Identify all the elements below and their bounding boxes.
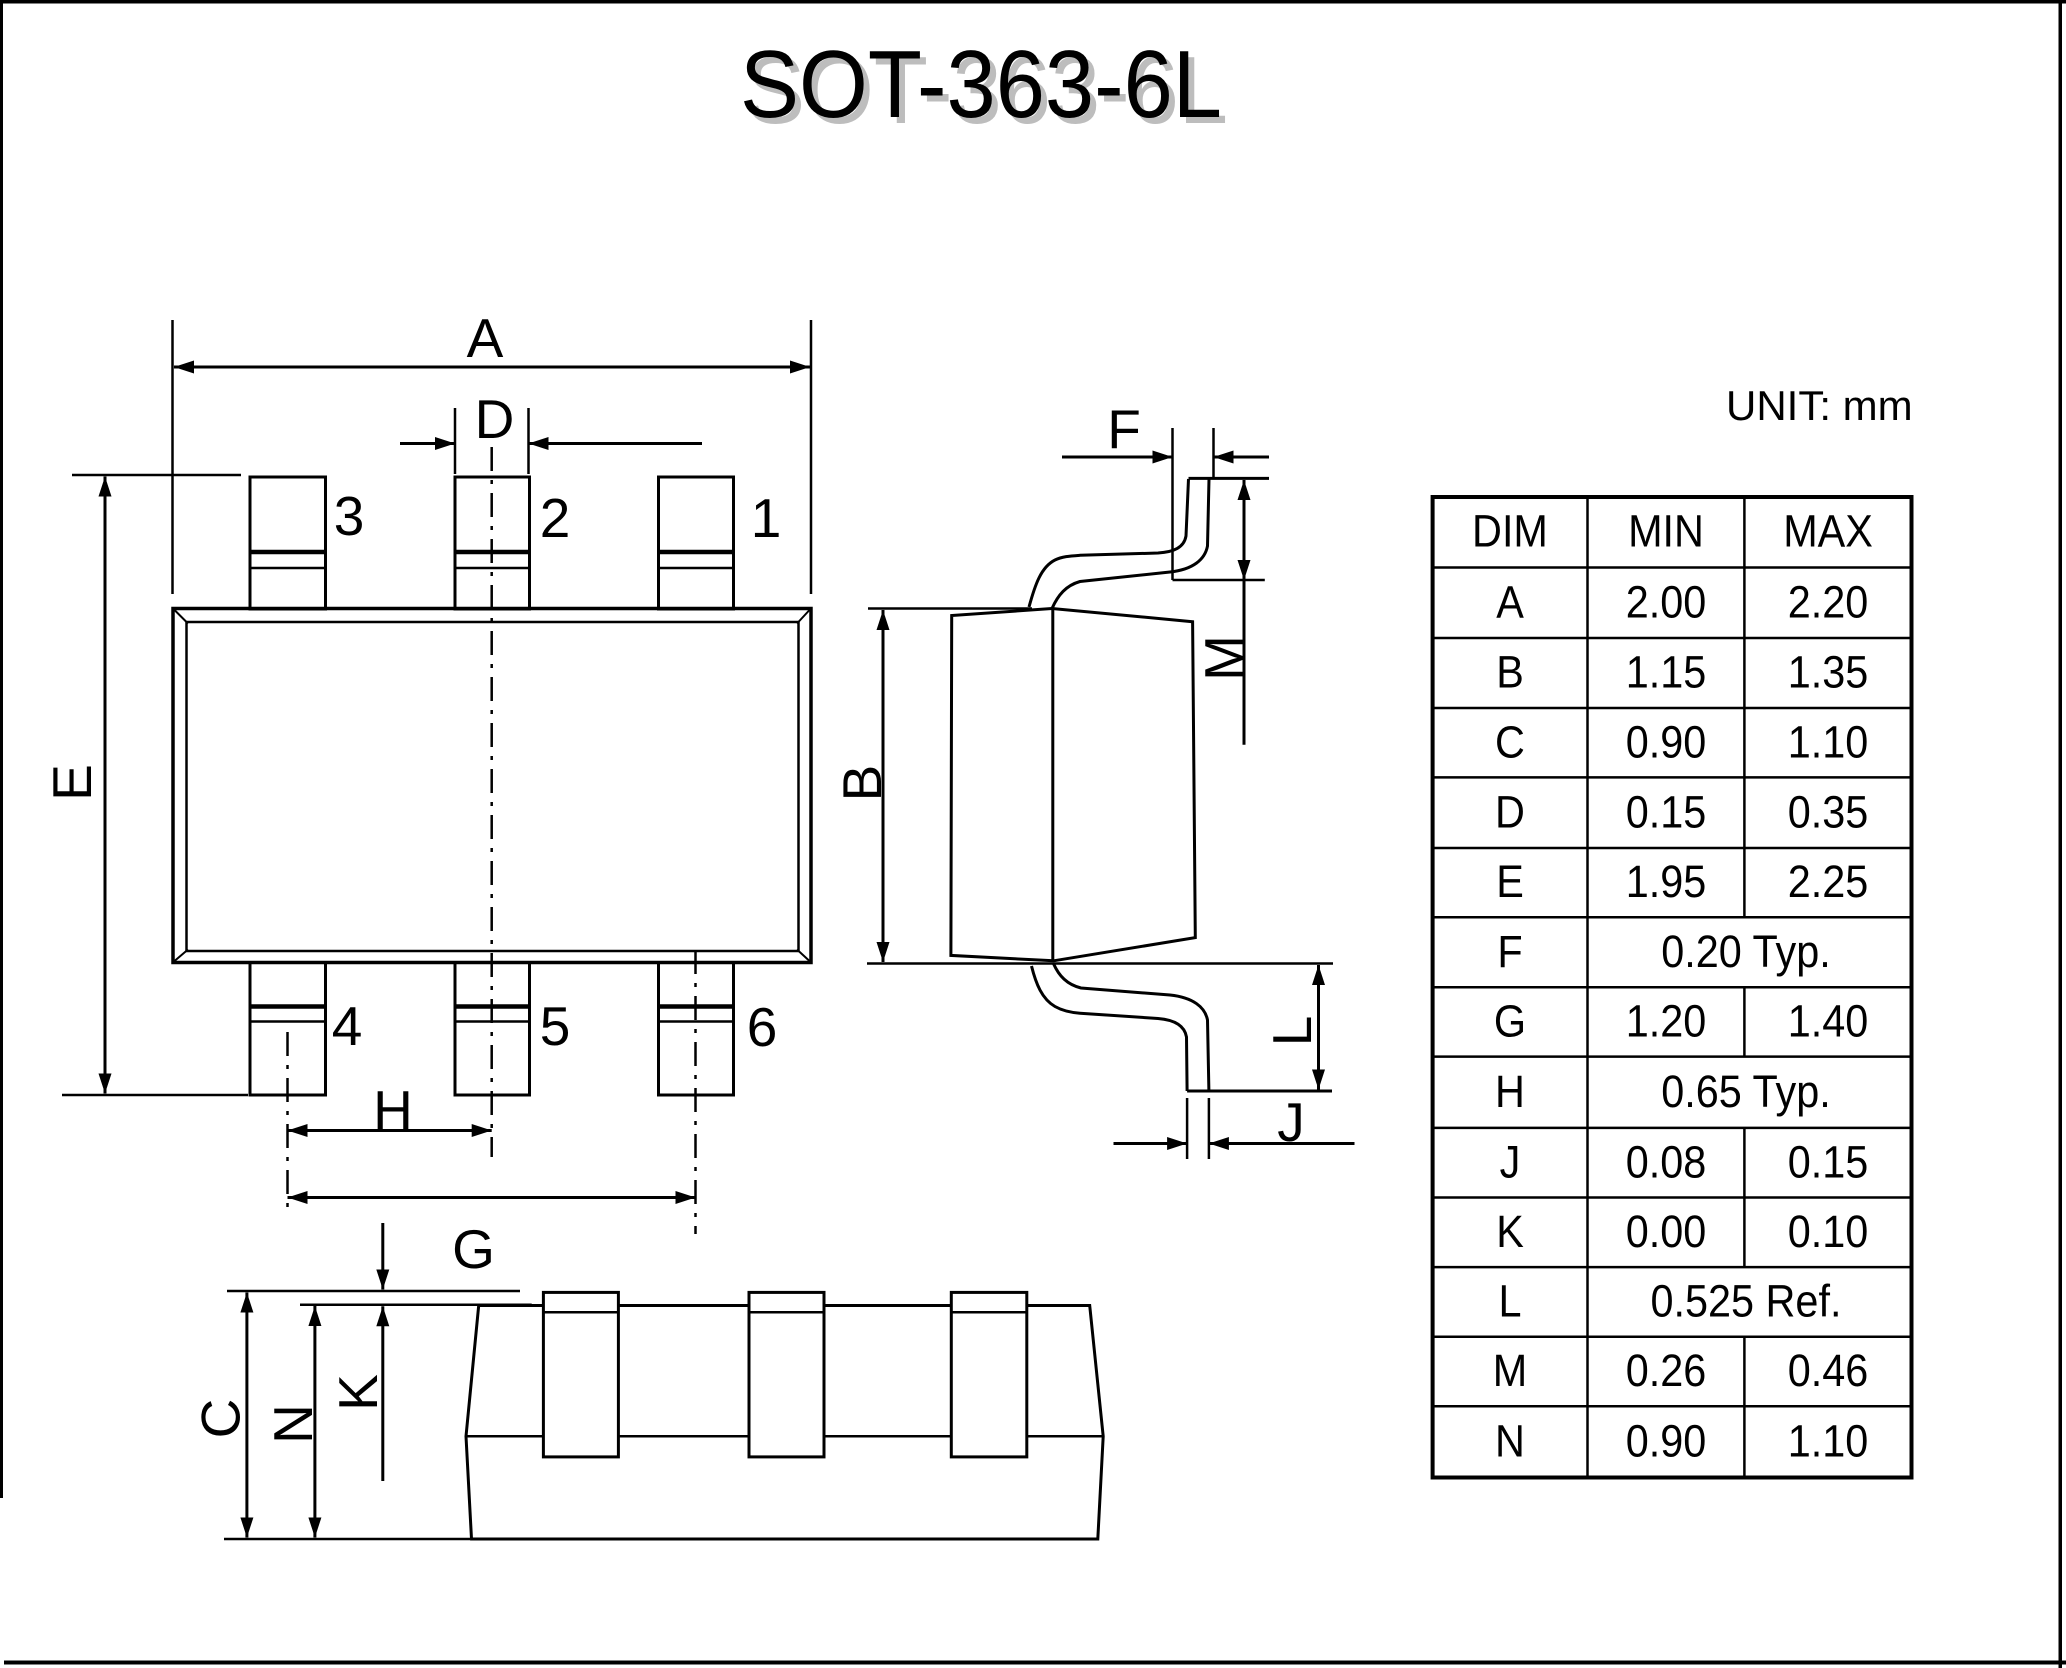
svg-text:0.46: 0.46	[1788, 1347, 1869, 1397]
svg-text:H: H	[1495, 1067, 1525, 1117]
svg-text:2.20: 2.20	[1788, 578, 1869, 628]
svg-text:M: M	[1193, 635, 1255, 681]
svg-text:0.08: 0.08	[1626, 1138, 1707, 1188]
svg-text:MAX: MAX	[1783, 507, 1873, 557]
svg-text:C: C	[1495, 718, 1525, 768]
svg-text:L: L	[1261, 1016, 1323, 1047]
svg-text:SOT-363-6L: SOT-363-6L	[740, 31, 1222, 138]
svg-text:0.15: 0.15	[1788, 1138, 1869, 1188]
svg-text:0.10: 0.10	[1788, 1207, 1869, 1257]
svg-text:0.35: 0.35	[1788, 788, 1869, 838]
svg-text:D: D	[1495, 788, 1525, 838]
svg-text:E: E	[1496, 858, 1524, 908]
svg-text:2.25: 2.25	[1788, 858, 1869, 908]
svg-text:6: 6	[747, 996, 778, 1058]
svg-text:B: B	[1496, 648, 1524, 698]
svg-text:5: 5	[540, 995, 571, 1057]
svg-text:1.20: 1.20	[1626, 997, 1707, 1047]
svg-text:0.00: 0.00	[1626, 1207, 1707, 1257]
svg-text:G: G	[1494, 997, 1526, 1047]
svg-text:N: N	[1495, 1417, 1525, 1467]
svg-text:A: A	[1496, 578, 1524, 628]
svg-text:0.26: 0.26	[1626, 1347, 1707, 1397]
svg-text:4: 4	[332, 995, 363, 1057]
svg-text:A: A	[467, 307, 504, 369]
svg-text:F: F	[1497, 927, 1522, 977]
svg-text:MIN: MIN	[1628, 507, 1704, 557]
svg-text:0.90: 0.90	[1626, 718, 1707, 768]
svg-text:J: J	[1277, 1091, 1305, 1153]
svg-text:G: G	[452, 1218, 495, 1280]
svg-text:DIM: DIM	[1472, 507, 1548, 557]
svg-text:K: K	[327, 1374, 389, 1411]
svg-text:2: 2	[540, 487, 571, 549]
svg-text:1.40: 1.40	[1788, 997, 1869, 1047]
svg-text:1.35: 1.35	[1788, 648, 1869, 698]
svg-text:1.10: 1.10	[1788, 718, 1869, 768]
svg-text:0.20 Typ.: 0.20 Typ.	[1661, 927, 1830, 977]
svg-text:3: 3	[334, 485, 365, 547]
svg-text:N: N	[262, 1404, 324, 1444]
svg-text:F: F	[1107, 399, 1141, 461]
svg-text:0.15: 0.15	[1626, 788, 1707, 838]
svg-text:0.90: 0.90	[1626, 1417, 1707, 1467]
svg-text:2.00: 2.00	[1626, 578, 1707, 628]
svg-text:1.95: 1.95	[1626, 858, 1707, 908]
svg-text:1: 1	[751, 487, 782, 549]
svg-text:J: J	[1500, 1138, 1521, 1188]
svg-text:0.525 Ref.: 0.525 Ref.	[1650, 1277, 1841, 1327]
svg-text:C: C	[190, 1399, 252, 1439]
svg-text:M: M	[1493, 1347, 1527, 1397]
svg-text:L: L	[1498, 1277, 1521, 1327]
svg-text:UNIT: mm: UNIT: mm	[1726, 382, 1913, 429]
svg-text:H: H	[373, 1079, 413, 1141]
svg-text:K: K	[1496, 1207, 1524, 1257]
svg-text:B: B	[831, 765, 893, 802]
svg-text:0.65 Typ.: 0.65 Typ.	[1661, 1067, 1830, 1117]
svg-text:E: E	[41, 764, 103, 801]
svg-text:D: D	[475, 388, 515, 450]
svg-text:1.10: 1.10	[1788, 1417, 1869, 1467]
svg-text:1.15: 1.15	[1626, 648, 1707, 698]
